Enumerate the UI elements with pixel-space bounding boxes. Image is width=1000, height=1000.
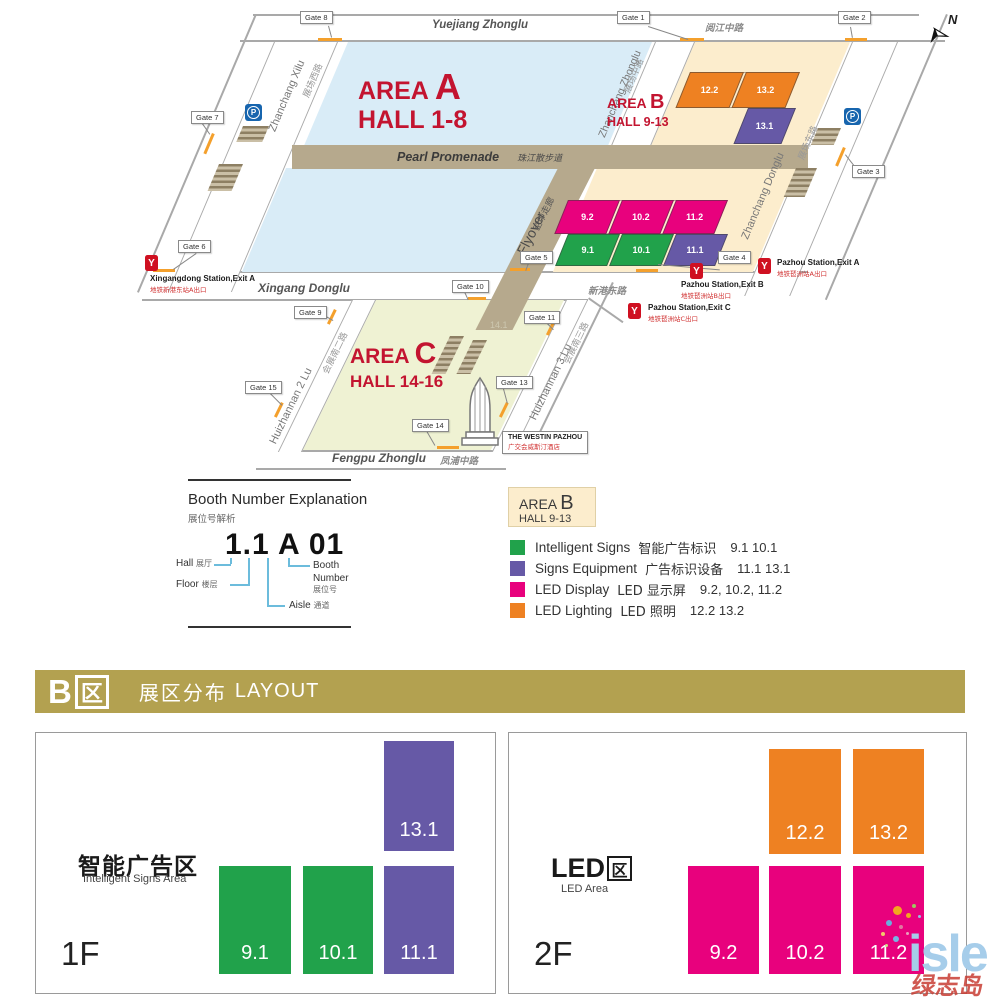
gate-8: Gate 8 <box>300 11 333 24</box>
area-a-letter: A <box>435 66 461 107</box>
block-label: 12.2 <box>786 822 825 845</box>
floor2-label: 2F <box>534 935 573 973</box>
legend-area-word: AREA <box>519 496 556 512</box>
floor2-zone-boxchar: 区 <box>607 856 632 881</box>
map-hall-9-1-label: 9.1 <box>581 245 594 255</box>
floor2-zone-title: LED 区 <box>551 853 632 884</box>
xingangdong-station-label-zh: 地铁新港东站A出口 <box>150 284 206 294</box>
watermark: isle 绿志岛 <box>860 890 1000 1000</box>
floor2-block-10-2: 10.2 <box>769 866 841 974</box>
metro-icon-pazhou-c: Y <box>628 303 641 319</box>
metro-icon-pazhou-a: Y <box>758 258 771 274</box>
watermark-dot <box>912 904 916 908</box>
fengpu-label-zh: 凤浦中路 <box>440 453 478 467</box>
gate-3: Gate 3 <box>852 165 885 178</box>
legend: AREA B HALL 9-13 Intelligent Signs 智能广告标… <box>500 480 960 630</box>
parking-icon-east: P <box>844 108 861 125</box>
exhibition-map-page: Pearl Promenade 珠江散步道 Flyover 空中走廊 Yueji… <box>0 0 1000 1000</box>
pazhou-b-label-zh: 地铁琶洲站B出口 <box>681 290 731 300</box>
floor1-label: 1F <box>61 935 100 973</box>
gate-15-pointer <box>269 392 282 405</box>
map-hall-11-1-label: 11.1 <box>687 245 704 255</box>
gate-11: Gate 11 <box>524 311 560 324</box>
floor1-zone-subtitle: Intelligent Signs Area <box>83 873 186 885</box>
legend-item-en: LED Lighting <box>535 603 612 618</box>
gate-2-tick <box>845 38 867 41</box>
watermark-dot <box>918 915 921 918</box>
yuejiang-label: Yuejiang Zhonglu <box>432 19 528 31</box>
gate-14: Gate 14 <box>412 419 449 432</box>
pazhou-a-label: Pazhou Station,Exit A <box>777 258 859 267</box>
legend-area-hall: HALL 9-13 <box>519 513 595 525</box>
pazhou-c-label-zh: 地铁琶洲站C出口 <box>648 313 698 323</box>
metro-glyph: Y <box>631 306 638 317</box>
westin-label-zh: 广交会威斯汀酒店 <box>508 441 582 451</box>
aisle-zh: 通道 <box>313 601 329 610</box>
map-hall-12-2-label: 12.2 <box>701 85 719 95</box>
floor1-block-10-1: 10.1 <box>303 866 373 974</box>
booth-en: Booth <box>313 560 349 573</box>
booth-rule-bottom <box>188 626 351 628</box>
booth-title: Booth Number Explanation <box>188 491 367 508</box>
booth-example-aisle: A <box>278 528 300 561</box>
legend-item-zh: 广告标识设备 <box>645 559 723 578</box>
gate-13: Gate 13 <box>496 376 533 389</box>
floor2-block-13-2: 13.2 <box>853 749 924 854</box>
hall-callout-h <box>214 564 231 566</box>
legend-item-en: Intelligent Signs <box>535 540 630 555</box>
floor2-block-9-2: 9.2 <box>688 866 759 974</box>
parking-letter: P <box>846 110 859 123</box>
legend-item-halls: 9.2, 10.2, 11.2 <box>700 582 782 597</box>
watermark-dot <box>893 906 902 915</box>
watermark-zh: 绿志岛 <box>910 966 987 1000</box>
pearl-promenade: Pearl Promenade 珠江散步道 <box>292 145 808 169</box>
banner-title-zh: 展区分布 <box>139 677 227 706</box>
legend-item-zh: LED 显示屏 <box>617 580 686 599</box>
area-b-letter: B <box>650 91 664 113</box>
legend-item-halls: 11.1 13.1 <box>737 561 790 576</box>
pearl-promenade-label: Pearl Promenade <box>397 150 499 164</box>
hall-callout-label: Hall 展厅 <box>176 558 212 569</box>
booth-example-number: 01 <box>309 528 344 561</box>
area-b-title: AREA B HALL 9-13 <box>607 92 669 129</box>
floor-zh: 楼层 <box>202 580 218 589</box>
area-a-title: AREA A HALL 1-8 <box>358 68 467 134</box>
gate-14-tick <box>437 446 459 449</box>
booth-en2: Number <box>313 573 349 586</box>
legend-area-letter: B <box>560 492 573 514</box>
gate-4-tick <box>636 269 658 272</box>
booth-zh: 展位号 <box>313 585 349 595</box>
aisle-callout-label: Aisle 通道 <box>289 600 329 611</box>
metro-icon-pazhou-b: Y <box>690 263 703 279</box>
watermark-dot <box>893 936 899 942</box>
aisle-callout-h <box>267 605 285 607</box>
pearl-promenade-label-zh: 珠江散步道 <box>517 151 562 164</box>
map-hall-11-2-label: 11.2 <box>687 212 704 222</box>
floor1-block-9-1: 9.1 <box>219 866 291 974</box>
floor2-zone-en: LED <box>551 853 605 884</box>
parking-letter: P <box>247 106 260 119</box>
booth-subtitle: 展位号解析 <box>188 511 236 525</box>
banner-area-letter: B <box>48 675 72 708</box>
block-label: 10.1 <box>319 942 358 965</box>
legend-item: LED Display LED 显示屏 9.2, 10.2, 11.2 <box>510 580 782 599</box>
block-label: 13.2 <box>869 822 908 845</box>
area-c-hall: HALL 14-16 <box>350 372 443 391</box>
pazhou-a-label-zh: 地铁琶洲站A出口 <box>777 268 827 278</box>
watermark-dot <box>899 925 903 929</box>
map-hall-13-1-label: 13.1 <box>756 121 774 131</box>
block-label: 9.1 <box>241 942 269 965</box>
area-c-word: AREA <box>350 345 409 368</box>
gate-7-tick <box>203 133 214 154</box>
compass-icon <box>923 23 950 48</box>
hall-en: Hall <box>176 558 193 569</box>
gate-10-tick <box>468 297 486 300</box>
booth-explanation: Booth Number Explanation 展位号解析 1.1 A 01 … <box>0 470 500 670</box>
map-hall-13-2-label: 13.2 <box>757 85 775 95</box>
legend-swatch-green <box>510 540 525 555</box>
map-hall-10-2-label: 10.2 <box>632 212 650 222</box>
layout-banner: B 区 展区分布 LAYOUT <box>35 670 965 713</box>
area-c-letter: C <box>415 337 437 370</box>
site-map: Pearl Promenade 珠江散步道 Flyover 空中走廊 Yueji… <box>0 0 1000 470</box>
floor1-block-13-1: 13.1 <box>384 741 454 851</box>
pazhou-b-label: Pazhou Station,Exit B <box>681 280 764 289</box>
legend-item: Signs Equipment 广告标识设备 11.1 13.1 <box>510 559 790 578</box>
area-a-word: AREA <box>358 77 428 105</box>
gate-9: Gate 9 <box>294 306 327 319</box>
area-a-hall: HALL 1-8 <box>358 106 467 134</box>
hall-zh: 展厅 <box>196 559 212 568</box>
floor-callout-label: Floor 楼层 <box>176 579 218 590</box>
floor2-zone-subtitle: LED Area <box>561 883 608 895</box>
gate-15: Gate 15 <box>245 381 282 394</box>
hall-14-1-faint-label: 14.1 <box>490 320 508 330</box>
aisle-en: Aisle <box>289 600 311 611</box>
aisle-callout-v <box>267 558 269 606</box>
metro-glyph: Y <box>148 258 155 269</box>
legend-swatch-orange <box>510 603 525 618</box>
watermark-dot <box>881 932 885 936</box>
gate-10: Gate 10 <box>452 280 489 293</box>
yuejiang-road-top-line <box>253 14 919 16</box>
metro-icon-xingangdong: Y <box>145 255 158 271</box>
metro-glyph: Y <box>761 261 768 272</box>
floor-1f-panel: 13.1 9.1 10.1 11.1 智能广告区 Intelligent Sig… <box>35 732 496 994</box>
parking-icon-west: P <box>245 104 262 121</box>
legend-swatch-purple <box>510 561 525 576</box>
xingang-label: Xingang Donglu <box>258 281 350 295</box>
westin-label-en: THE WESTIN PAZHOU <box>508 434 582 441</box>
watermark-dot <box>886 920 892 926</box>
banner-title-en: LAYOUT <box>235 680 320 703</box>
legend-area-title: AREA B <box>519 492 595 515</box>
floor1-block-11-1: 11.1 <box>384 866 454 974</box>
legend-item-en: LED Display <box>535 582 609 597</box>
gate-2-pointer <box>850 27 853 38</box>
map-hall-10-1-label: 10.1 <box>633 245 651 255</box>
watermark-dot <box>906 913 911 918</box>
legend-item-halls: 12.2 13.2 <box>690 603 744 618</box>
legend-item-en: Signs Equipment <box>535 561 637 576</box>
area-b-word: AREA <box>607 95 646 111</box>
block-label: 9.2 <box>710 942 738 965</box>
gate-2: Gate 2 <box>838 11 871 24</box>
booth-rule-top <box>188 479 351 481</box>
booth-callout-label: Booth Number 展位号 <box>313 560 349 595</box>
gate-8-tick <box>318 38 342 41</box>
legend-item: Intelligent Signs 智能广告标识 9.1 10.1 <box>510 538 777 557</box>
legend-item-zh: 智能广告标识 <box>638 538 716 557</box>
xingang-label-zh: 新港东路 <box>588 283 626 297</box>
westin-label-box: THE WESTIN PAZHOU 广交会威斯汀酒店 <box>502 431 588 454</box>
floor-en: Floor <box>176 579 199 590</box>
floor-callout-h <box>230 584 248 586</box>
floor2-block-12-2: 12.2 <box>769 749 841 854</box>
map-hall-9-2-label: 9.2 <box>581 212 594 222</box>
booth-example: 1.1 A 01 <box>225 528 344 562</box>
gate-6: Gate 6 <box>178 240 211 253</box>
block-label: 11.1 <box>400 942 437 965</box>
watermark-dot <box>885 944 888 947</box>
gate-5: Gate 5 <box>520 251 553 264</box>
north-label: N <box>948 12 957 27</box>
gate-1: Gate 1 <box>617 11 650 24</box>
fengpu-label: Fengpu Zhonglu <box>332 451 426 465</box>
block-label: 13.1 <box>400 819 439 842</box>
gate-7: Gate 7 <box>191 111 224 124</box>
westin-tower-icon <box>460 376 500 448</box>
banner-area-boxchar: 区 <box>75 675 109 709</box>
gate-4: Gate 4 <box>718 251 751 264</box>
booth-callout-h <box>288 565 310 567</box>
floor-callout-v <box>248 558 250 586</box>
metro-glyph: Y <box>693 266 700 277</box>
area-b-hall: HALL 9-13 <box>607 115 669 129</box>
legend-area-box: AREA B HALL 9-13 <box>508 487 596 527</box>
legend-item: LED Lighting LED 照明 12.2 13.2 <box>510 601 744 620</box>
legend-item-halls: 9.1 10.1 <box>730 540 777 555</box>
booth-example-hallfloor: 1.1 <box>225 528 270 561</box>
legend-item-zh: LED 照明 <box>620 601 676 620</box>
block-label: 10.2 <box>786 942 825 965</box>
yuejiang-label-zh: 阅江中路 <box>705 20 743 34</box>
pazhou-c-label: Pazhou Station,Exit C <box>648 303 731 312</box>
area-c-title: AREA C HALL 14-16 <box>350 338 443 393</box>
legend-swatch-magenta <box>510 582 525 597</box>
xingangdong-station-label: Xingangdong Station,Exit A <box>150 274 255 283</box>
